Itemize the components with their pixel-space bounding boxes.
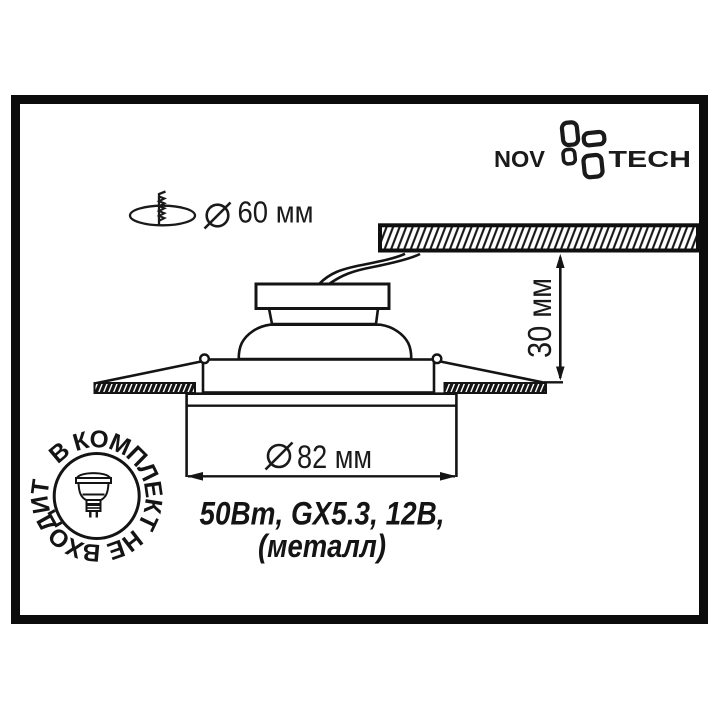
svg-text:NOV: NOV [494,146,546,172]
svg-text:82 мм: 82 мм [297,439,372,475]
svg-text:TECH: TECH [609,146,692,172]
svg-text:60 мм: 60 мм [238,195,314,230]
svg-text:(меmалл): (меmалл) [258,528,386,564]
svg-text:30 мм: 30 мм [521,278,558,358]
svg-text:50Вm, GX5.3, 12В,: 50Вm, GX5.3, 12В, [200,496,445,532]
